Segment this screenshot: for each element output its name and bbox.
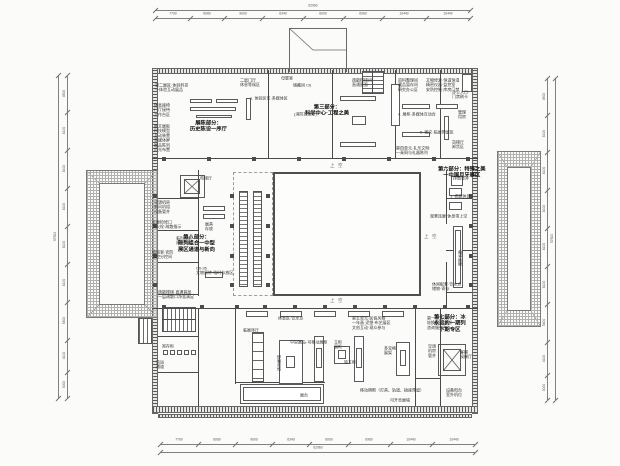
dim-bottom-value-4: 6000 [318, 438, 338, 442]
display-case-41 [191, 350, 196, 355]
dim-top-value-3: 6340 [272, 12, 292, 16]
escalator-1 [239, 191, 248, 287]
cell-cabinet [252, 332, 264, 382]
column-9 [200, 305, 204, 309]
column-10 [235, 305, 239, 309]
column-34 [469, 283, 473, 287]
column-30 [469, 254, 473, 258]
display-case-17 [203, 206, 225, 211]
annotation-19: 观景连廊·休息带上空 [430, 214, 467, 219]
annotation-17: 排烟竖井 [453, 176, 469, 181]
display-case-1 [216, 99, 238, 103]
annotation-44: 展具 存放 [205, 222, 213, 231]
dim-top-value-0: 7700 [162, 12, 182, 16]
partition-wall-15 [446, 292, 472, 293]
dim-bottom-value-2: 9000 [243, 438, 263, 442]
left-terrace-inner [99, 183, 145, 305]
dim-left-value-0: 4500 [62, 83, 66, 103]
dim-top-value-2: 9000 [233, 12, 253, 16]
annotation-28: 临展序厅 [243, 328, 259, 333]
annotation-8: 疏散楼梯间 直通屋面 [352, 78, 372, 87]
display-case-27 [338, 350, 346, 359]
partition-wall-20 [158, 336, 198, 337]
annotation-29: 第五单元·民俗风物 一年画·泥塑·布艺展区 文创互动·观众参与 [352, 316, 391, 330]
dim-right-value-8: 3000 [542, 377, 546, 397]
column-12 [293, 305, 297, 309]
annotation-39: 可开合展墙 [390, 398, 410, 403]
dim-left-total-value: 57500 [53, 226, 57, 246]
elevator-car-bottom-right [443, 349, 461, 371]
partition-wall-6 [198, 170, 199, 296]
column-7 [466, 157, 470, 161]
dim-top-value-1: 6080 [197, 12, 217, 16]
annotation-41: 寄存柜 [162, 344, 174, 349]
dim-right-value-7: 4100 [542, 348, 546, 368]
column-19 [230, 194, 234, 198]
annotation-13: 管理 用房 [458, 110, 466, 119]
dim-left-value-2: 8100 [62, 158, 66, 178]
right-terrace-inner [507, 167, 531, 311]
display-case-8 [402, 104, 430, 109]
annotation-16: 货梯厅 卸货区 [452, 140, 464, 149]
display-case-7 [352, 116, 366, 125]
display-case-31 [243, 387, 321, 401]
column-15 [383, 305, 387, 309]
display-case-18 [203, 214, 225, 219]
column-8 [162, 305, 166, 309]
display-case-2 [190, 107, 236, 111]
annotation-14: 5. 图文·临展预留区 [420, 130, 454, 135]
display-case-9 [436, 104, 458, 109]
display-case-29 [400, 350, 406, 366]
display-case-23 [316, 348, 322, 368]
dim-bottom-value-5: 6960 [359, 438, 379, 442]
annotation-27: 休息区·饮水点 [278, 316, 303, 321]
dim-top-value-5: 6960 [352, 12, 372, 16]
annotation-7: (消防控制室) [294, 112, 317, 117]
annotation-23: 临时库房 周转存放 [176, 236, 192, 245]
column-13 [323, 305, 327, 309]
partition-wall-21 [158, 372, 198, 373]
column-31 [230, 283, 234, 287]
floorplan-canvas: 展陈部分： 历史陈设一序厅第三部分： 科学中心·工程之美第六部分：特殊之美 一中… [0, 0, 620, 466]
exterior-wall-bottom-outer [158, 414, 472, 418]
dim-right-value-5: 8100 [542, 274, 546, 294]
column-21 [153, 194, 157, 198]
partition-wall-23 [415, 378, 440, 379]
annotation-6: 1. 体验区位·多媒体区 [250, 96, 288, 101]
annotation-18: 1. 檐廊休息 [450, 194, 470, 199]
column-2 [252, 157, 256, 161]
annotation-0: 第二展区·体验科技 一体验互动展品 [155, 83, 188, 92]
partition-wall-7 [158, 198, 198, 199]
central-hall [273, 172, 421, 296]
entrance-canopy [289, 28, 347, 72]
annotation-42: 货运 通道 [156, 360, 164, 369]
display-case-38 [170, 350, 175, 355]
exterior-wall-right [472, 68, 478, 414]
display-case-37 [163, 350, 168, 355]
partition-wall-0 [268, 70, 269, 158]
column-1 [207, 157, 211, 161]
annotation-4: 母婴室 [281, 76, 293, 81]
display-case-39 [177, 350, 182, 355]
column-27 [230, 254, 234, 258]
dim-left-value-4: 8100 [62, 234, 66, 254]
dim-top-value-7: 10440 [438, 12, 458, 16]
annotation-9: 资料整理间 藏品暂存间 研究办公区 [398, 78, 418, 92]
escalator-2 [253, 191, 262, 287]
display-case-4 [246, 98, 251, 120]
display-case-11 [444, 116, 449, 140]
annotation-24: 值班室·安防 监控分控间 [152, 250, 173, 259]
dim-right-value-6: 5400 [542, 312, 546, 332]
display-case-0 [190, 99, 212, 103]
annotation-1: 休息座椅 门厅接待 工作台区 [154, 103, 170, 117]
dim-left-value-3: 8100 [62, 196, 66, 216]
display-case-34 [314, 311, 336, 317]
display-case-6 [340, 142, 376, 147]
void-label-2: 上 空 [424, 234, 438, 239]
dim-top-segment-line [155, 18, 470, 19]
stair-bottom-left-rail [162, 319, 196, 320]
dim-bottom-total-line [160, 452, 475, 453]
dim-right-total-line [555, 78, 556, 400]
dim-left-total-line [58, 75, 59, 398]
annotation-5: 储藏间 C6 [293, 83, 311, 88]
stair-top-right-rail [372, 71, 373, 94]
dim-right-value-2: 8100 [542, 160, 546, 180]
vertical-label-0: 观景长廊 [458, 250, 463, 266]
annotation-31: 中央展岛·可移动展柜 [290, 340, 327, 345]
dim-left-value-7: 4100 [62, 345, 66, 365]
vertical-label-1: 活动展墙 [277, 355, 282, 371]
column-32 [266, 283, 270, 287]
void-label-1: 上 空 [330, 298, 344, 303]
partition-wall-16 [198, 308, 199, 406]
partition-wall-17 [235, 308, 236, 384]
dim-bottom-total-value: 62960 [307, 446, 327, 450]
column-17 [443, 305, 447, 309]
annotation-37: 移动隔断（灯具、轨道、插座预留） [360, 388, 424, 393]
column-5 [387, 157, 391, 161]
dim-bottom-value-6: 10440 [401, 438, 421, 442]
display-case-3 [196, 115, 232, 118]
dim-left-segment-line [67, 75, 68, 398]
annotation-22: 走廊检修口 消火栓·疏散指示 [152, 220, 181, 229]
dim-bottom-value-7: 10440 [443, 438, 463, 442]
dim-top-total-value: 62960 [302, 4, 322, 8]
dim-bottom-value-3: 6340 [280, 438, 300, 442]
dim-left-value-6: 5400 [62, 310, 66, 330]
display-case-32 [246, 311, 268, 317]
annotation-21: 空调机房 新风机组 设备管井 [154, 200, 170, 214]
partition-wall-9 [158, 262, 198, 263]
annotation-3: 二层门厅 休息等候区 [240, 78, 260, 87]
dim-bottom-value-1: 6080 [206, 438, 226, 442]
annotation-32: 立柜 展柜 [334, 340, 342, 349]
annotation-20: 休闲配套·饮水点 储物·寄存 [432, 282, 461, 291]
column-33 [153, 283, 157, 287]
dim-left-value-5: 8100 [62, 272, 66, 292]
dim-right-total-value: 57500 [550, 228, 554, 248]
annotation-35: 空调 机房 管井 [428, 344, 436, 358]
exterior-wall-bottom [152, 406, 478, 413]
annotation-2: 图文展板 科技模型 互动装置 多媒体屏 展品陈列 灯光布置 [154, 124, 170, 152]
annotation-25: C0-26 文物周转·临时存放区 [196, 266, 233, 275]
annotation-33: 多宝格 展架 [384, 346, 396, 355]
display-case-25 [356, 348, 362, 368]
column-16 [413, 305, 417, 309]
display-case-40 [184, 350, 189, 355]
annotation-36: 客梯 候梯厅 [460, 350, 472, 359]
dim-left-value-8: 3000 [62, 374, 66, 394]
dim-top-value-6: 10440 [394, 12, 414, 16]
column-3 [297, 157, 301, 161]
annotation-11: 4. 展柜·多媒体互动台 [398, 112, 436, 117]
column-6 [432, 157, 436, 161]
annotation-38: 展台 [300, 393, 308, 398]
void-label-0: 上 空 [330, 163, 344, 168]
column-24 [266, 224, 270, 228]
floorplan-drawing: 展陈部分： 历史陈设一序厅第三部分： 科学中心·工程之美第六部分：特殊之美 一中… [0, 0, 620, 466]
column-28 [266, 254, 270, 258]
display-case-21 [286, 356, 295, 368]
column-0 [162, 157, 166, 161]
annotation-26: 疏散楼梯·直通首层 一层疏散口净宽满足 [158, 290, 194, 299]
partition-wall-4 [152, 158, 478, 159]
column-23 [230, 224, 234, 228]
annotation-30: 第一单元·序厅 轮换展项·导引 咨询服务台 [427, 316, 452, 330]
annotation-40: 设备阳台 室外机位 [446, 388, 462, 397]
dim-right-value-0: 4500 [542, 86, 546, 106]
display-case-5 [340, 96, 376, 101]
annotation-43: 电梯厅 [200, 176, 212, 181]
dim-left-value-1: 8100 [62, 120, 66, 140]
dim-top-value-4: 6000 [313, 12, 333, 16]
zone-label-0: 展陈部分： 历史陈设一序厅 [190, 120, 227, 132]
dim-right-segment-line [547, 78, 548, 400]
column-4 [342, 157, 346, 161]
dim-bottom-value-0: 7700 [169, 438, 189, 442]
partition-wall-8 [158, 230, 198, 231]
annotation-34: 独立柜 [344, 360, 356, 365]
dim-right-value-1: 8100 [542, 123, 546, 143]
column-18 [466, 305, 470, 309]
stair-exterior-left [138, 318, 152, 344]
annotation-12: 办公入口 门禁刷卡 [452, 90, 468, 99]
dim-right-value-3: 8100 [542, 198, 546, 218]
column-14 [353, 305, 357, 309]
column-20 [266, 194, 270, 198]
dim-right-value-4: 8100 [542, 236, 546, 256]
column-11 [263, 305, 267, 309]
column-26 [469, 224, 473, 228]
annotation-15: 第四单元·礼乐文明 一青铜与礼器陈列 [396, 146, 429, 155]
display-case-16 [449, 202, 462, 210]
